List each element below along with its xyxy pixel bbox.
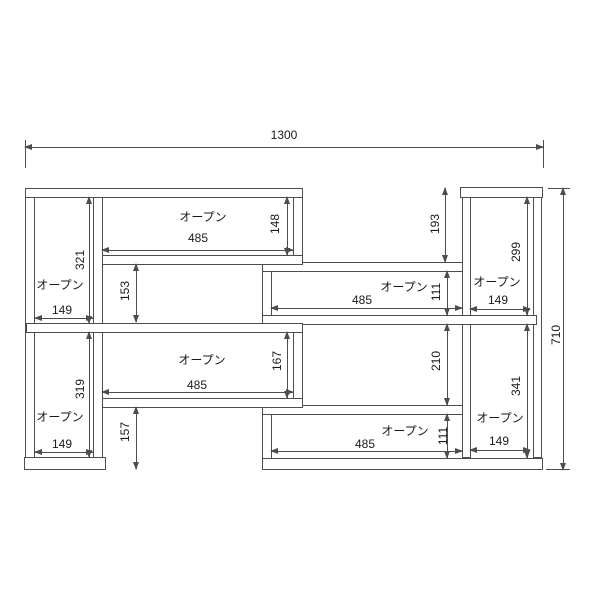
- dim-line-overall-width: [25, 147, 543, 148]
- divider-lower-shelf-end: [293, 332, 303, 399]
- dim-line-right-bottom-width: [470, 450, 530, 451]
- open-label-bottom-shelf: オープン: [381, 425, 428, 437]
- top-board: [25, 188, 303, 198]
- dim-label-left-top-width: 149: [52, 304, 72, 316]
- open-label-right-top: オープン: [473, 276, 520, 288]
- open-label-left-top: オープン: [36, 279, 83, 291]
- dim-line-lower-shelf-height: [287, 332, 288, 398]
- bottom-board: [262, 458, 543, 470]
- dim-line-left-bottom-height: [89, 332, 90, 457]
- dim-line-lower-shelf-width: [102, 392, 293, 393]
- dim-line-right-top-width: [470, 309, 530, 310]
- dim-label-mid-shelf-height: 111: [430, 283, 442, 301]
- dim-line-mid-shelf-height: [447, 271, 448, 315]
- dim-label-gap-157: 157: [119, 422, 131, 442]
- furniture-dimension-diagram: 1300 710 オープン 485 148 321 オープン 149 153 1…: [0, 0, 600, 600]
- dim-line-gap-210: [447, 324, 448, 405]
- dim-label-right-bottom-height: 341: [510, 376, 522, 396]
- dim-line-bottom-shelf-width: [271, 451, 462, 452]
- dim-line-top-shelf-height: [287, 197, 288, 255]
- dim-label-bottom-shelf-height: 111: [437, 427, 449, 445]
- dim-label-bottom-shelf-width: 485: [355, 438, 375, 450]
- dim-label-lower-shelf-height: 167: [271, 351, 283, 371]
- dim-line-gap-157: [136, 407, 137, 469]
- dim-label-mid-shelf-width: 485: [352, 294, 372, 306]
- extension-line-height-top: [548, 188, 570, 189]
- open-label-top-shelf: オープン: [179, 211, 226, 223]
- open-label-mid-shelf: オープン: [380, 281, 427, 293]
- right-column-right-panel: [533, 197, 542, 458]
- dim-line-left-top-width: [35, 318, 93, 319]
- divider-top-shelf-end: [293, 197, 303, 256]
- dim-label-overall-width: 1300: [271, 129, 298, 141]
- dim-label-right-bottom-width: 149: [489, 435, 509, 447]
- left-column-base: [24, 457, 106, 470]
- open-label-lower-shelf: オープン: [178, 354, 225, 366]
- shelf-mid-right: [262, 315, 537, 325]
- dim-line-left-bottom-width: [35, 452, 93, 453]
- dim-label-gap-153: 153: [119, 281, 131, 301]
- dim-line-gap-153: [136, 264, 137, 322]
- right-column-top-cap: [460, 187, 543, 198]
- shelf-mid-left: [26, 323, 303, 333]
- dim-label-gap-210: 210: [430, 351, 442, 371]
- open-label-left-bottom: オープン: [36, 411, 83, 423]
- open-label-right-bottom: オープン: [476, 412, 523, 424]
- dim-label-right-top-width: 149: [488, 294, 508, 306]
- dim-label-lower-shelf-width: 485: [187, 379, 207, 391]
- dim-line-right-top-height: [527, 197, 528, 315]
- dim-label-left-bottom-width: 149: [52, 438, 72, 450]
- extension-line-height-bottom: [546, 469, 570, 470]
- dim-line-gap-193: [445, 188, 446, 262]
- dim-label-top-shelf-width: 485: [188, 232, 208, 244]
- dim-label-left-top-height: 321: [74, 250, 86, 270]
- dim-label-overall-height: 710: [550, 325, 562, 345]
- dim-line-overall-height: [563, 188, 564, 470]
- dim-line-left-top-height: [89, 197, 90, 323]
- dim-line-top-shelf-width: [102, 250, 293, 251]
- dim-line-mid-shelf-width: [271, 308, 462, 309]
- right-column-left-panel: [462, 197, 471, 458]
- dim-line-right-bottom-height: [527, 324, 528, 458]
- dim-label-top-shelf-height: 148: [269, 214, 281, 234]
- dim-label-right-top-height: 299: [510, 242, 522, 262]
- dim-label-gap-193: 193: [429, 214, 441, 234]
- dim-label-left-bottom-height: 319: [74, 379, 86, 399]
